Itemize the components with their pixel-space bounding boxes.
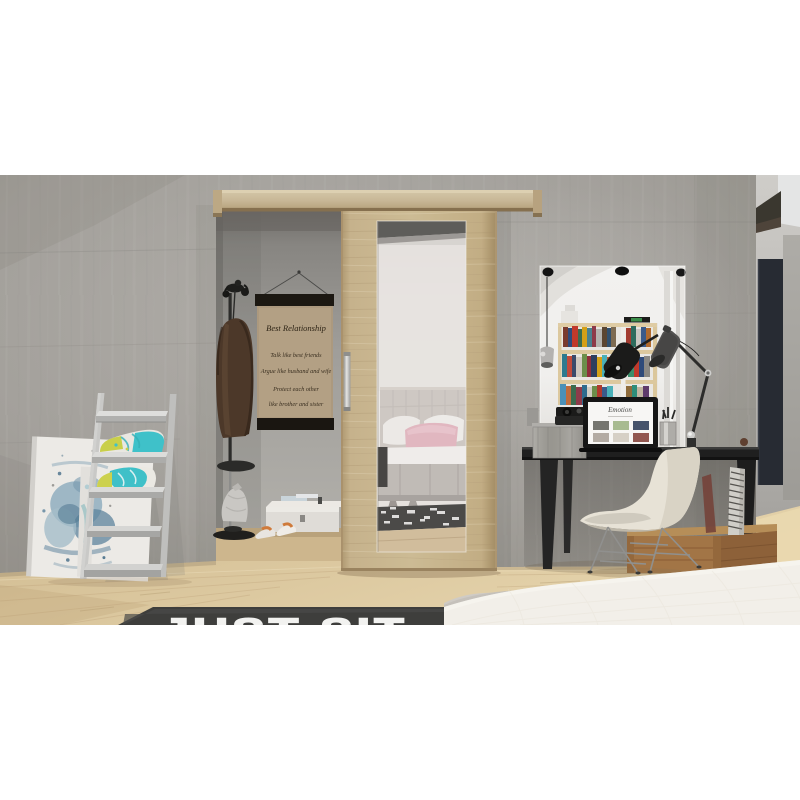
svg-text:Protect each other: Protect each other — [272, 386, 319, 393]
svg-text:Talk like best friends: Talk like best friends — [270, 352, 322, 359]
svg-text:JUST SIT: JUST SIT — [162, 612, 408, 625]
svg-text:like brother and sister: like brother and sister — [269, 401, 324, 408]
svg-text:Emotion: Emotion — [607, 406, 632, 414]
svg-text:Argue like husband and wife: Argue like husband and wife — [260, 368, 332, 375]
svg-text:Best Relationship: Best Relationship — [266, 323, 326, 333]
